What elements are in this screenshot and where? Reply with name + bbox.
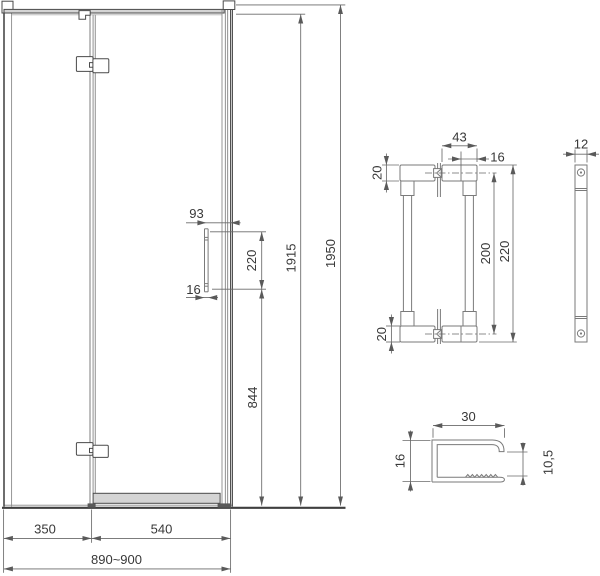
dim-label-890-900: 890~900: [91, 552, 142, 567]
top-clamp: [79, 11, 90, 20]
dim-label-16-handle: 16: [490, 150, 504, 165]
hinge-bottom: [76, 443, 108, 458]
dim-label-540: 540: [151, 522, 173, 537]
dim-label-200: 200: [478, 243, 493, 265]
foot-right: [218, 503, 232, 507]
dim-block-length: 43: [442, 130, 477, 162]
dim-label-350: 350: [34, 522, 56, 537]
dim-label-220: 220: [244, 250, 259, 272]
view-handle-front: 43 16 20 20 200: [370, 130, 517, 354]
dim-hole-to-end: 16: [448, 150, 505, 165]
top-bar: [4, 9, 224, 13]
dim-hole-spacing: 200: [478, 173, 494, 334]
dim-label-12: 12: [574, 137, 588, 152]
dim-label-10-5: 10,5: [541, 450, 556, 475]
dim-label-43: 43: [452, 130, 466, 145]
handle-collar-bottom-left: [401, 312, 414, 327]
technical-drawing: 93 220 16 844 1915 1950: [0, 0, 600, 576]
door-handle: [205, 229, 209, 292]
drawing-sheet: 93 220 16 844 1915 1950: [0, 0, 600, 576]
dim-label-20-top: 20: [370, 166, 385, 180]
top-right-bracket: [223, 1, 235, 10]
dim-label-16: 16: [186, 282, 200, 297]
dim-label-1950: 1950: [323, 239, 338, 268]
handle-collar-top-left: [401, 181, 414, 196]
dim-profile-opening: 10,5: [507, 443, 556, 486]
door-bottom-rail: [93, 493, 220, 503]
dim-handle-thickness: 12: [563, 137, 599, 163]
dim-handle-length: 220: [210, 232, 266, 289]
handle-collar-bottom-right: [463, 312, 476, 327]
handle-collar-top-right: [463, 181, 476, 196]
dim-top-block-height: 20: [370, 154, 399, 193]
dim-label-16-profile: 16: [392, 454, 407, 468]
foot-left: [88, 503, 96, 507]
dim-label-1915: 1915: [284, 244, 299, 273]
dim-label-93: 93: [189, 206, 203, 221]
dim-handle-bottom-height: 844: [245, 289, 262, 505]
dim-bottom-widths: 350 540 890~900: [4, 510, 231, 573]
profile-bottom-wall: [432, 477, 504, 482]
dim-profile-width: 30: [433, 409, 505, 438]
view-handle-side: 12: [563, 137, 599, 342]
dim-handle-diameter: 16: [186, 282, 218, 300]
dim-label-844: 844: [245, 387, 260, 409]
dim-bottom-block-height: 20: [374, 315, 400, 354]
dim-profile-height: 16: [392, 431, 430, 492]
dim-label-30: 30: [461, 409, 475, 424]
dim-label-20-bottom: 20: [374, 327, 389, 341]
handle-side-body: [575, 165, 587, 342]
view-door-front: 93 220 16 844 1915 1950: [2, 1, 346, 573]
profile-top-wall: [432, 440, 504, 482]
dim-label-220-handle: 220: [497, 241, 512, 263]
view-bottom-profile: 30 16 10,5: [392, 409, 555, 491]
hinge-top: [76, 57, 108, 73]
